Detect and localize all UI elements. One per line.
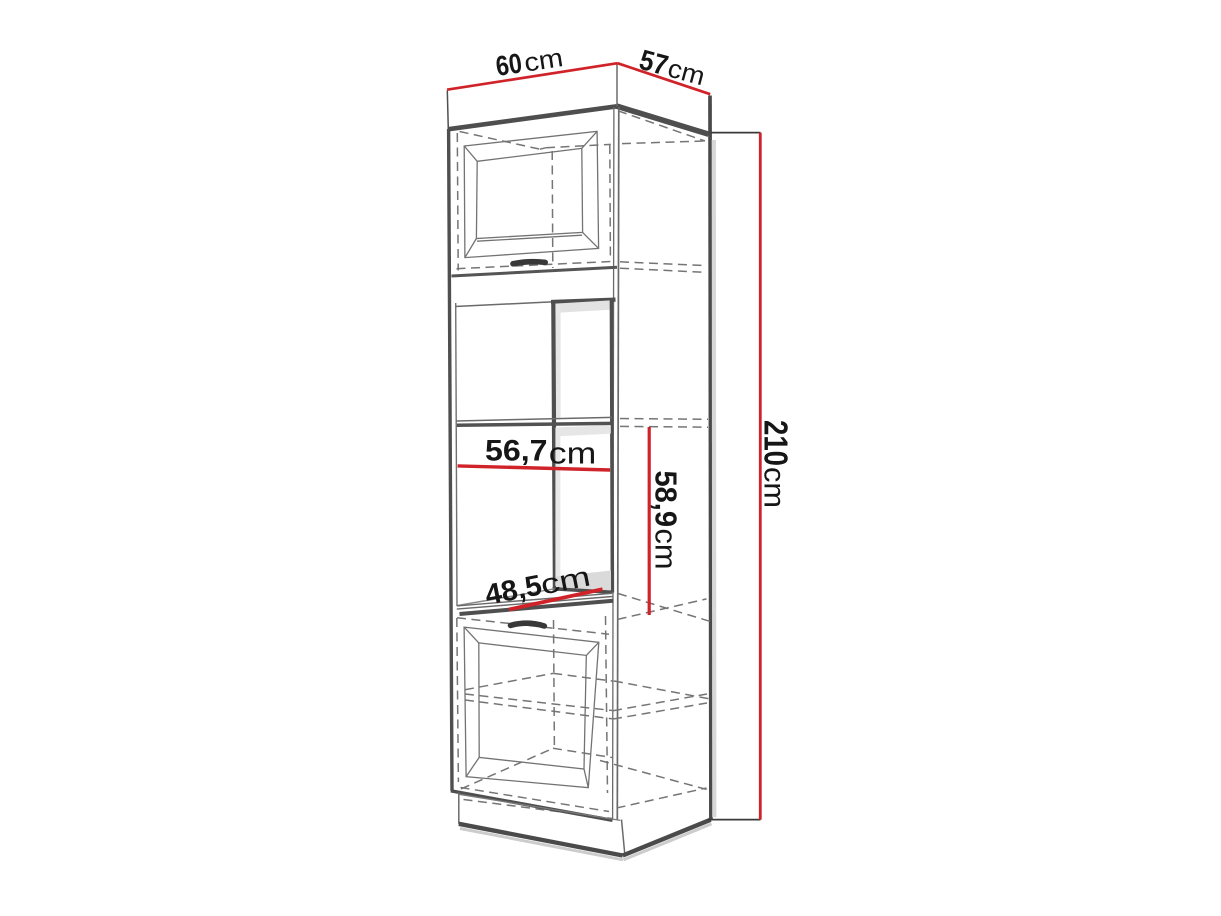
svg-text:210: 210 bbox=[758, 420, 795, 466]
svg-text:60: 60 bbox=[494, 47, 524, 82]
svg-text:cm: cm bbox=[549, 436, 597, 471]
svg-text:cm: cm bbox=[758, 467, 791, 508]
svg-text:cm: cm bbox=[522, 42, 565, 77]
svg-text:56,7: 56,7 bbox=[485, 435, 548, 468]
svg-text:58,9: 58,9 bbox=[649, 471, 684, 528]
svg-text:cm: cm bbox=[649, 529, 684, 570]
